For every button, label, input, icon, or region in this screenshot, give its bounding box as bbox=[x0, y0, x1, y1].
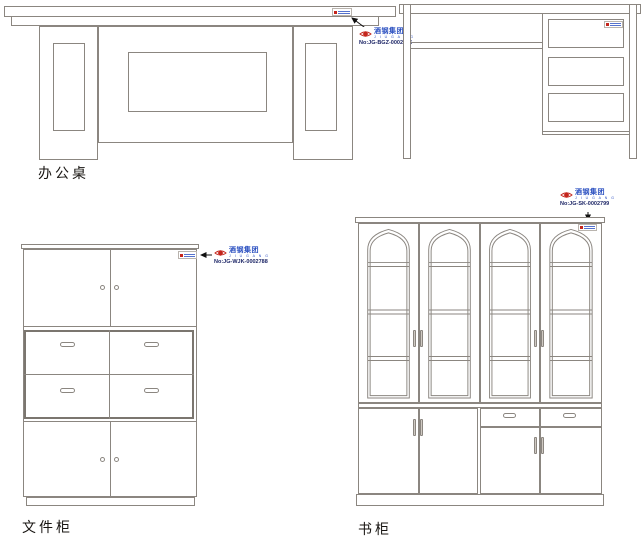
bookcase-plinth bbox=[356, 494, 604, 506]
bookcase-glass-door-3 bbox=[480, 223, 540, 403]
desk-left-pedestal-panel bbox=[53, 43, 85, 131]
side-desk-left-leg bbox=[403, 4, 411, 159]
desk-caption: 办公桌 bbox=[38, 163, 89, 183]
brand-name-en: J I U G A N G bbox=[229, 255, 270, 259]
brand-label-top: 酒钢集团 J I U G A N G bbox=[214, 247, 270, 258]
sticker-logo-icon bbox=[180, 254, 183, 257]
side-desk-pedestal-bottom-line2 bbox=[542, 134, 629, 135]
bookcase-upper-handle-left-b bbox=[420, 330, 423, 347]
furniture-drawing-canvas: 酒钢集团 J I U G A N G No:JG-BGZ-0002245 办公桌 bbox=[0, 0, 643, 544]
bookcase-upper-handle-left-a bbox=[413, 330, 416, 347]
cabinet-lower-left-knob bbox=[100, 457, 105, 462]
bookcase-drawer-handle-1 bbox=[503, 413, 516, 418]
cabinet-product-sticker bbox=[178, 251, 197, 259]
side-desk-pedestal-edge bbox=[542, 14, 543, 134]
side-desk-drawer-3 bbox=[548, 93, 624, 122]
cabinet-caption: 文件柜 bbox=[22, 517, 73, 537]
glass-window bbox=[420, 224, 479, 402]
bookcase-lower-left-handle-a bbox=[413, 419, 416, 436]
bookcase-lower-door-4 bbox=[540, 427, 602, 494]
side-desk-rail-bottom-line bbox=[411, 48, 542, 49]
bookcase-upper-handle-right-a bbox=[534, 330, 537, 347]
bookcase-glass-door-1 bbox=[358, 223, 419, 403]
cabinet-drawer-handle-2 bbox=[144, 342, 159, 347]
side-desk-rail-top-line bbox=[411, 42, 542, 43]
bookcase-glass-door-2 bbox=[419, 223, 480, 403]
cabinet-callout-arrow-icon bbox=[197, 250, 213, 260]
cabinet-drawer-handle-4 bbox=[144, 388, 159, 393]
bookcase-lower-door-2 bbox=[419, 408, 478, 494]
cabinet-plinth bbox=[26, 497, 195, 506]
cabinet-upper-left-knob bbox=[100, 285, 105, 290]
bookcase-product-number: No:JG-SK-0002799 bbox=[560, 202, 616, 208]
glass-window bbox=[541, 224, 601, 402]
sticker-logo-icon bbox=[334, 11, 337, 14]
desk-brand-label: 酒钢集团 J I U G A N G No:JG-BGZ-0002245 bbox=[357, 27, 409, 53]
side-desk-drawer-2 bbox=[548, 57, 624, 86]
bookcase-brand-label: 酒钢集团 J I U G A N G No:JG-SK-0002799 bbox=[558, 188, 618, 213]
bookcase-drawer-handle-2 bbox=[563, 413, 576, 418]
cabinet-drawer-handle-3 bbox=[60, 388, 75, 393]
bookcase-caption: 书柜 bbox=[358, 519, 392, 539]
bookcase-lower-right-handle-a bbox=[534, 437, 537, 454]
brand-label-top: 酒钢集团 J I U G A N G bbox=[359, 28, 407, 39]
cabinet-lower-right-knob bbox=[114, 457, 119, 462]
cabinet-drawer-handle-1 bbox=[60, 342, 75, 347]
bookcase-lower-door-1 bbox=[358, 408, 419, 494]
cabinet-upper-door-divider bbox=[110, 249, 111, 327]
desk-modesty-panel-cutout bbox=[128, 52, 267, 112]
side-desk-pedestal-bottom-line1 bbox=[542, 131, 629, 132]
bookcase-product-sticker bbox=[578, 224, 597, 231]
cabinet-upper-right-knob bbox=[114, 285, 119, 290]
sticker-text-lines bbox=[610, 23, 621, 26]
desk-product-number: No:JG-BGZ-0002245 bbox=[359, 41, 407, 47]
sticker-logo-icon bbox=[606, 23, 609, 26]
bookcase-lower-door-3 bbox=[480, 427, 540, 494]
brand-texts: 酒钢集团 J I U G A N G bbox=[229, 247, 270, 258]
cabinet-brand-label: 酒钢集团 J I U G A N G No:JG-WJK-0002788 bbox=[212, 246, 272, 272]
jiugang-logo-icon bbox=[560, 190, 573, 200]
sticker-text-lines bbox=[584, 226, 595, 229]
jiugang-logo-icon bbox=[359, 29, 372, 39]
cabinet-product-number: No:JG-WJK-0002788 bbox=[214, 260, 270, 266]
desk-right-pedestal-panel bbox=[305, 43, 337, 131]
bookcase-lower-left-handle-b bbox=[420, 419, 423, 436]
brand-texts: 酒钢集团 J I U G A N G bbox=[575, 189, 616, 200]
bookcase-upper-handle-right-b bbox=[541, 330, 544, 347]
glass-window bbox=[359, 224, 418, 402]
side-desk-right-leg bbox=[629, 4, 637, 159]
cabinet-lower-door-divider bbox=[110, 421, 111, 497]
desk-top-edge bbox=[11, 16, 379, 26]
brand-label-top: 酒钢集团 J I U G A N G bbox=[560, 189, 616, 200]
bookcase-lower-right-handle-b bbox=[541, 437, 544, 454]
side-desk-top bbox=[399, 4, 641, 14]
bookcase-glass-door-4 bbox=[540, 223, 602, 403]
sticker-logo-icon bbox=[580, 226, 583, 229]
brand-name-en: J I U G A N G bbox=[575, 197, 616, 201]
jiugang-logo-icon bbox=[214, 248, 227, 258]
glass-window bbox=[481, 224, 539, 402]
sticker-text-lines bbox=[184, 254, 195, 257]
cabinet-drawer-row-divider bbox=[24, 374, 194, 375]
cabinet-upper-shelf-line bbox=[23, 326, 197, 327]
side-desk-product-sticker bbox=[604, 21, 623, 28]
